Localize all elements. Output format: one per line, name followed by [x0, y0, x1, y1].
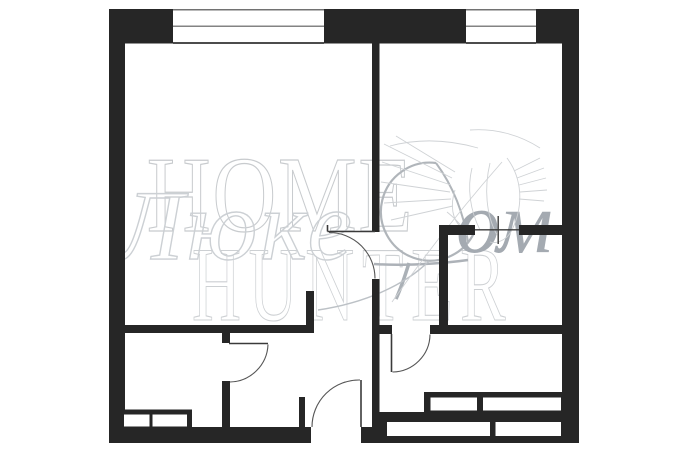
svg-text:ом: ом	[456, 175, 553, 272]
svg-text:Люке: Люке	[113, 170, 355, 281]
